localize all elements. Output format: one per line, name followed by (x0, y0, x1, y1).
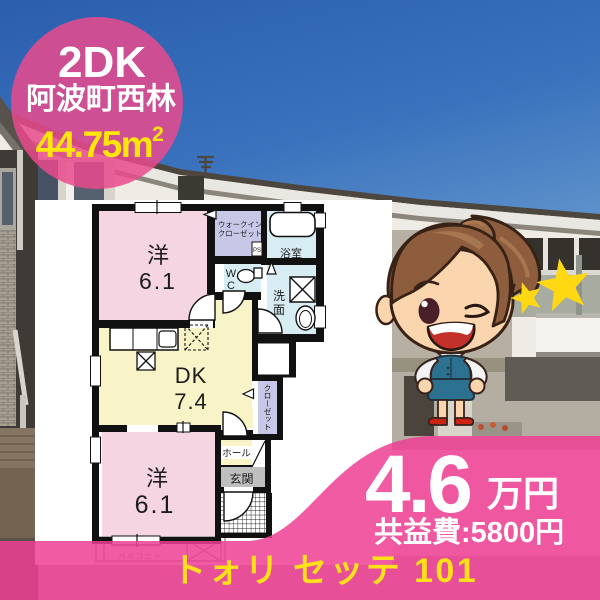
svg-text:面: 面 (273, 303, 285, 317)
svg-text:阿波町西林: 阿波町西林 (26, 83, 176, 116)
svg-text:トォリ セッテ 101: トォリ セッテ 101 (172, 552, 478, 590)
svg-text:クローゼット: クローゼット (263, 384, 272, 431)
svg-text:洗: 洗 (273, 289, 285, 303)
svg-text:DK: DK (175, 363, 208, 388)
svg-text:洋: 洋 (146, 466, 168, 491)
svg-text:共益費:5800円: 共益費:5800円 (374, 516, 564, 549)
svg-text:W: W (226, 268, 237, 280)
svg-text:ウォークイン: ウォークイン (218, 220, 262, 229)
svg-text:6.1: 6.1 (139, 268, 177, 294)
svg-text:44.75m2: 44.75m2 (36, 123, 164, 165)
svg-text:7.4: 7.4 (174, 389, 208, 414)
svg-text:クローゼット: クローゼット (218, 229, 262, 238)
svg-text:洋: 洋 (147, 243, 169, 268)
svg-text:玄関: 玄関 (229, 471, 253, 486)
svg-text:万円: 万円 (487, 473, 559, 514)
svg-text:浴室: 浴室 (280, 246, 302, 260)
svg-text:2DK: 2DK (58, 38, 146, 87)
svg-text:6.1: 6.1 (135, 491, 176, 519)
svg-text:PS: PS (253, 248, 261, 254)
svg-text:ホール: ホール (222, 449, 251, 460)
svg-text:C: C (227, 280, 235, 292)
